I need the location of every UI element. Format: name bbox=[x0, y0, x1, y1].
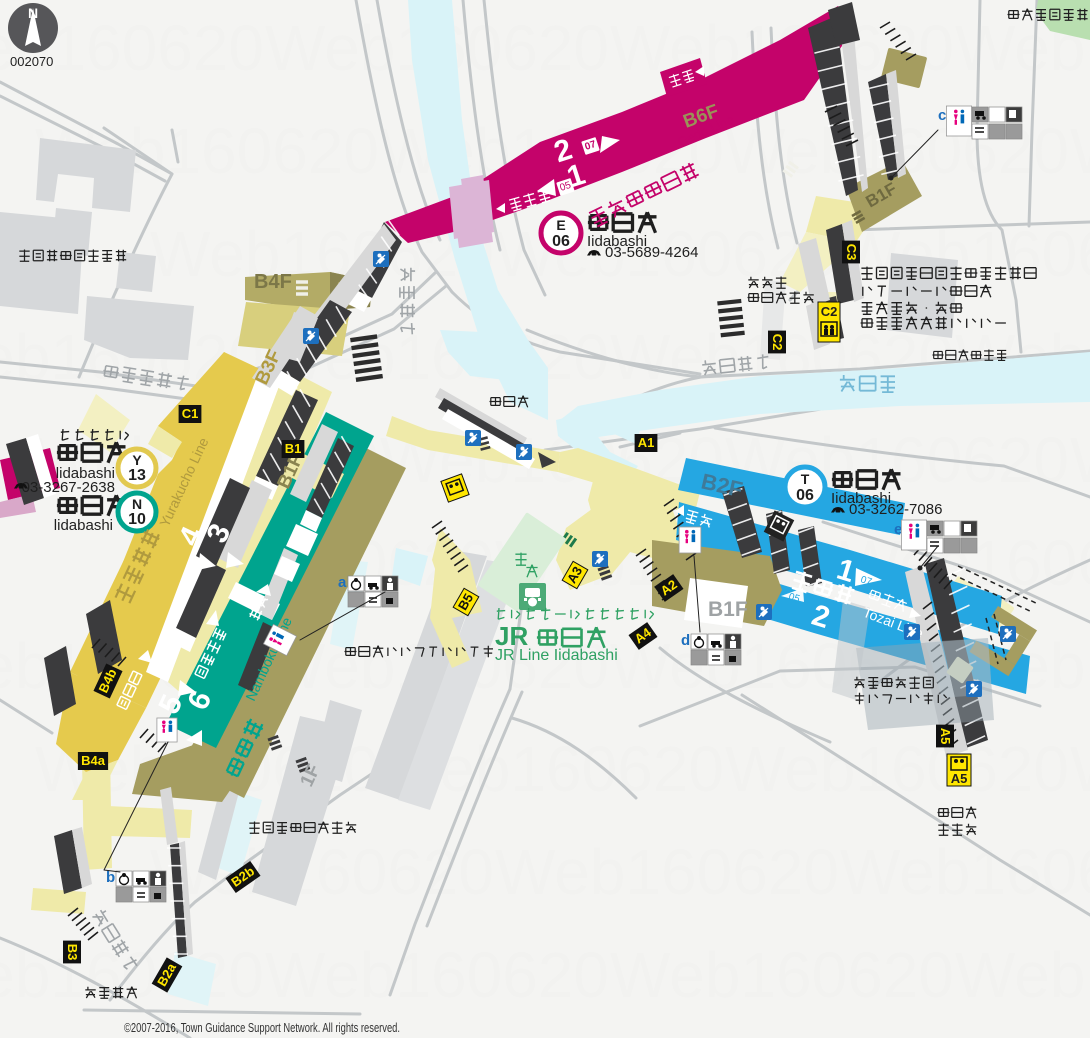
svg-text:C2: C2 bbox=[770, 334, 785, 351]
svg-text:06: 06 bbox=[796, 487, 814, 504]
svg-text:Web160620: Web160620 bbox=[265, 939, 609, 1011]
svg-text:N: N bbox=[28, 5, 38, 21]
svg-text:C2: C2 bbox=[821, 304, 838, 319]
svg-text:JR Line Iidabashi: JR Line Iidabashi bbox=[495, 647, 618, 664]
svg-text:A5: A5 bbox=[951, 771, 968, 786]
svg-text:B4F: B4F bbox=[254, 271, 292, 293]
svg-text:002070: 002070 bbox=[10, 54, 53, 69]
svg-text:Web160620: Web160620 bbox=[1070, 115, 1090, 187]
svg-text:03-5689-4264: 03-5689-4264 bbox=[605, 244, 698, 261]
svg-text:Web160620: Web160620 bbox=[0, 939, 264, 1011]
svg-text:c: c bbox=[938, 107, 946, 124]
svg-text:E: E bbox=[556, 217, 565, 233]
svg-text:03-3267-2638: 03-3267-2638 bbox=[22, 479, 115, 496]
svg-text:Web160620: Web160620 bbox=[955, 939, 1090, 1011]
svg-text:06: 06 bbox=[552, 233, 570, 250]
svg-text:10: 10 bbox=[128, 511, 146, 528]
svg-text:Web160620: Web160620 bbox=[610, 939, 954, 1011]
svg-text:Y: Y bbox=[132, 452, 142, 468]
svg-text:B4a: B4a bbox=[81, 753, 106, 768]
svg-text:03-3262-7086: 03-3262-7086 bbox=[849, 501, 942, 518]
svg-text:T: T bbox=[801, 471, 810, 487]
svg-text:d: d bbox=[681, 632, 690, 649]
svg-text:N: N bbox=[132, 496, 142, 512]
svg-text:C1: C1 bbox=[182, 406, 199, 421]
svg-text:B1: B1 bbox=[285, 441, 302, 456]
svg-text:lidabashi: lidabashi bbox=[54, 517, 113, 534]
svg-text:a: a bbox=[338, 574, 347, 591]
svg-text:A5: A5 bbox=[938, 728, 953, 745]
svg-text:Web160620: Web160620 bbox=[1070, 733, 1090, 805]
svg-text:C3: C3 bbox=[844, 244, 859, 261]
svg-text:Web160620: Web160620 bbox=[840, 836, 1090, 908]
svg-text:Web160620: Web160620 bbox=[495, 836, 839, 908]
svg-text:B3: B3 bbox=[65, 944, 80, 961]
svg-text:A1: A1 bbox=[638, 435, 655, 450]
svg-text:Web160620: Web160620 bbox=[1070, 424, 1090, 496]
svg-text:13: 13 bbox=[128, 467, 146, 484]
svg-text:©2007-2016, Town Guidance Supp: ©2007-2016, Town Guidance Support Networ… bbox=[124, 1021, 400, 1035]
svg-text:B1F: B1F bbox=[708, 598, 748, 621]
